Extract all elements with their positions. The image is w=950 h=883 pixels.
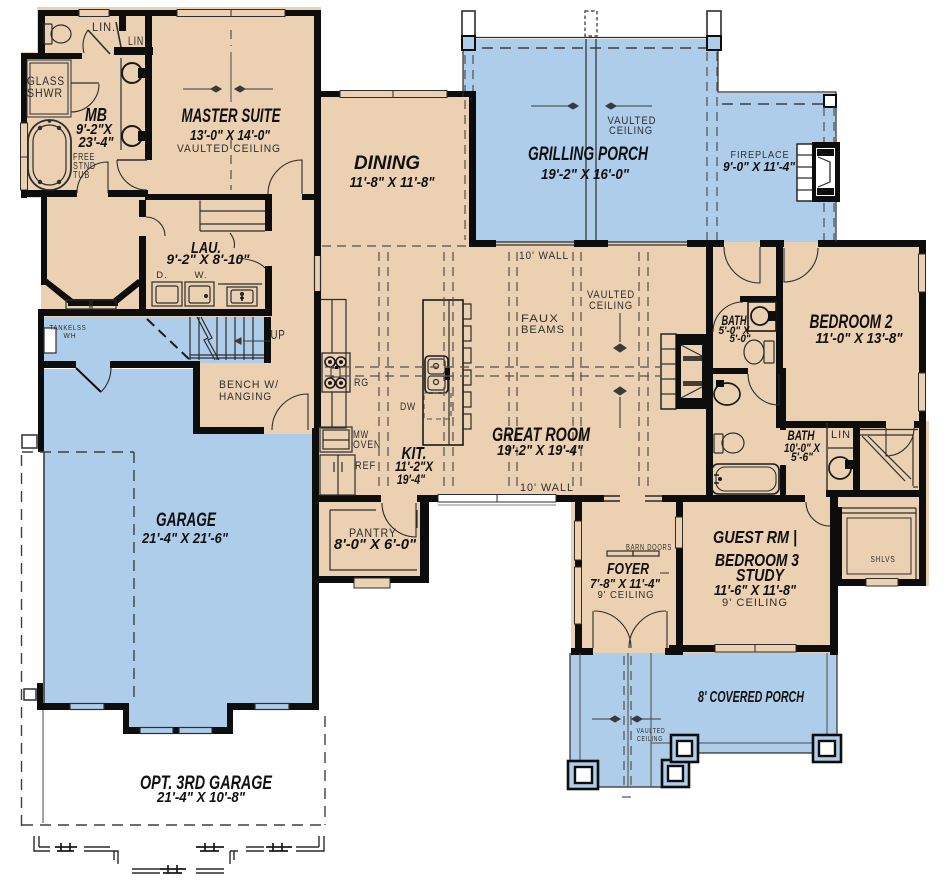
- svg-text:BARN DOORS: BARN DOORS: [626, 542, 672, 552]
- svg-text:RG: RG: [354, 377, 369, 389]
- svg-text:19'-2" X 19'-4": 19'-2" X 19'-4": [497, 443, 584, 459]
- svg-text:W.: W.: [194, 270, 207, 281]
- svg-text:9'-2" X 8'-10": 9'-2" X 8'-10": [167, 251, 250, 267]
- svg-text:11'-8" X 11'-8": 11'-8" X 11'-8": [350, 175, 436, 191]
- svg-text:UP: UP: [271, 327, 286, 342]
- svg-text:GRILLING PORCH: GRILLING PORCH: [528, 144, 649, 165]
- svg-text:CEILING: CEILING: [609, 125, 653, 137]
- svg-text:MASTER SUITE: MASTER SUITE: [182, 106, 282, 127]
- svg-text:10' WALL: 10' WALL: [520, 482, 574, 494]
- svg-text:TUB: TUB: [73, 170, 90, 181]
- svg-text:23'-4": 23'-4": [78, 135, 115, 151]
- svg-text:REF: REF: [355, 460, 376, 472]
- svg-text:LIN.: LIN.: [92, 20, 116, 34]
- svg-text:5'-0": 5'-0": [730, 333, 752, 345]
- svg-text:DW: DW: [400, 401, 416, 413]
- svg-text:9' CEILING: 9' CEILING: [598, 589, 655, 601]
- svg-text:CEILING: CEILING: [637, 734, 663, 743]
- svg-text:WH: WH: [64, 331, 77, 340]
- svg-text:D.: D.: [156, 270, 168, 281]
- svg-text:BEDROOM 2: BEDROOM 2: [810, 312, 893, 333]
- svg-text:SHLVS: SHLVS: [871, 554, 896, 564]
- svg-text:BENCH W/: BENCH W/: [219, 379, 279, 391]
- svg-text:GUEST RM |: GUEST RM |: [713, 527, 797, 547]
- svg-text:DINING: DINING: [354, 153, 420, 174]
- svg-text:HANGING: HANGING: [219, 391, 272, 403]
- svg-text:5'-6": 5'-6": [791, 450, 813, 464]
- svg-text:9' CEILING: 9' CEILING: [722, 597, 788, 609]
- svg-text:CEILING: CEILING: [589, 300, 633, 312]
- svg-text:8' COVERED PORCH: 8' COVERED PORCH: [698, 689, 804, 706]
- svg-text:GARAGE: GARAGE: [156, 510, 217, 531]
- svg-text:10' WALL: 10' WALL: [519, 250, 569, 262]
- svg-text:21'-4" X 10'-8": 21'-4" X 10'-8": [156, 790, 246, 806]
- svg-text:8'-0" X 6'-0": 8'-0" X 6'-0": [334, 537, 417, 553]
- svg-text:19'-2" X 16'-0": 19'-2" X 16'-0": [541, 167, 630, 183]
- svg-text:9'-0" X 11'-4": 9'-0" X 11'-4": [723, 159, 796, 174]
- svg-text:21'-4" X 21'-6": 21'-4" X 21'-6": [141, 531, 229, 547]
- svg-text:13'-0" X 14'-0": 13'-0" X 14'-0": [190, 128, 271, 144]
- svg-text:VAULTED CEILING: VAULTED CEILING: [177, 143, 281, 155]
- svg-text:11'-0" X 13'-8": 11'-0" X 13'-8": [816, 331, 904, 347]
- svg-text:19'-4": 19'-4": [397, 471, 425, 487]
- svg-text:LIN: LIN: [831, 429, 851, 441]
- svg-text:LIN: LIN: [128, 34, 144, 48]
- svg-text:SHWR: SHWR: [27, 86, 63, 100]
- svg-text:OVEN: OVEN: [353, 439, 381, 451]
- svg-text:STUDY: STUDY: [736, 565, 785, 585]
- svg-text:BEAMS: BEAMS: [521, 324, 565, 336]
